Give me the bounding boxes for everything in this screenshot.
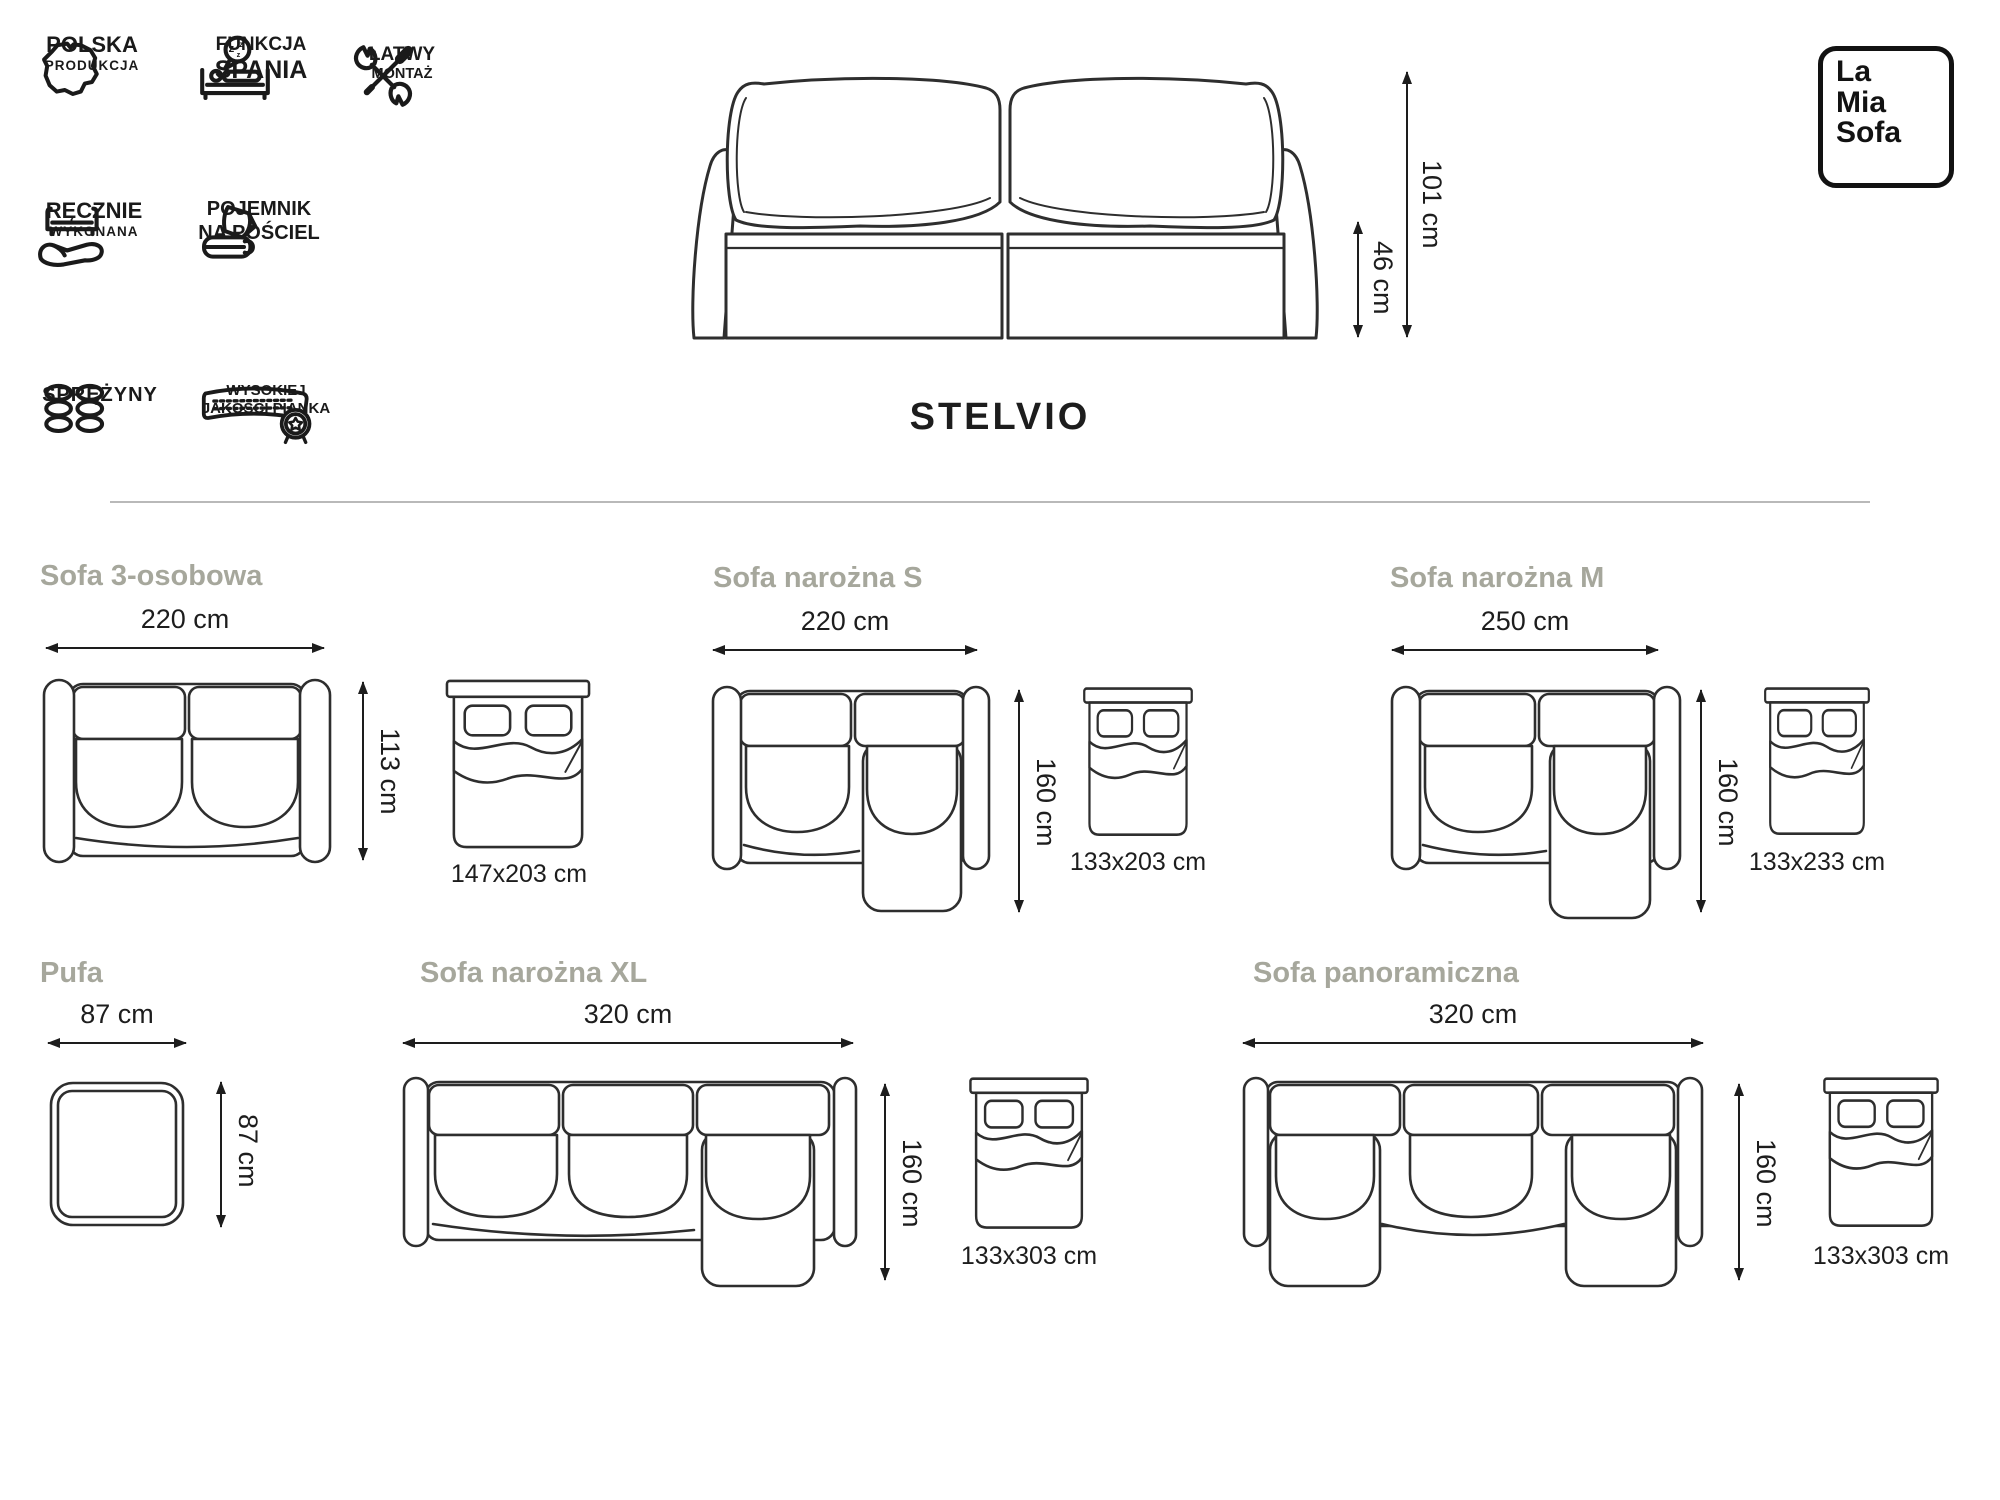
depth-dimension-arrow bbox=[884, 1084, 886, 1280]
spec-sheet: POLSKA PRODUKCJA z z z FUNKCJA SPANIA bbox=[0, 0, 2000, 1500]
depth-dimension-label: 160 cm bbox=[1750, 1139, 1781, 1228]
width-dimension-arrow bbox=[1392, 649, 1658, 651]
handmade-icon bbox=[30, 198, 114, 280]
pufa-top-view bbox=[48, 1080, 186, 1228]
variant-title-sofa-panoramiczna: Sofa panoramiczna bbox=[1253, 957, 1519, 990]
bed-size-icon bbox=[444, 678, 592, 852]
width-dimension-label: 220 cm bbox=[713, 606, 977, 637]
svg-text:z: z bbox=[228, 43, 234, 55]
brand-logo: La Mia Sofa bbox=[1818, 46, 1954, 188]
bed-size-label: 133x233 cm bbox=[1713, 848, 1921, 877]
bed-size-icon bbox=[1822, 1076, 1940, 1230]
width-dimension-label: 250 cm bbox=[1392, 606, 1658, 637]
width-dimension-arrow bbox=[403, 1042, 853, 1044]
feature-recznie-wykonana: RĘCZNIE WYKONANA bbox=[30, 198, 158, 240]
brand-logo-line: Mia bbox=[1836, 88, 1949, 119]
divider bbox=[110, 501, 1870, 503]
bed-size-label: 133x303 cm bbox=[1797, 1242, 1965, 1271]
brand-logo-line: La bbox=[1836, 57, 1949, 88]
tools-icon bbox=[348, 40, 418, 112]
variant-title-sofa-narozna-m: Sofa narożna M bbox=[1390, 562, 1604, 595]
sofa-front-view-drawing bbox=[680, 62, 1330, 342]
depth-dimension-arrow bbox=[1018, 690, 1020, 912]
feature-polska-produkcja: POLSKA PRODUKCJA bbox=[28, 32, 156, 74]
depth-dimension-arrow bbox=[220, 1082, 222, 1227]
variant-title-sofa-3-osobowa: Sofa 3-osobowa bbox=[40, 560, 262, 593]
variant-title-pufa: Pufa bbox=[40, 957, 103, 990]
feature-pojemnik-na-posciel: POJEMNIK NA POŚCIEL bbox=[188, 198, 330, 245]
variant-title-sofa-narozna-xl: Sofa narożna XL bbox=[420, 957, 647, 990]
width-dimension-label: 320 cm bbox=[403, 999, 853, 1030]
bed-size-label: 133x303 cm bbox=[943, 1242, 1115, 1271]
bed-size-label: 147x203 cm bbox=[414, 860, 624, 889]
bed-size-icon bbox=[968, 1076, 1090, 1232]
depth-dimension-arrow bbox=[1700, 690, 1702, 912]
feature-latwy-montaz: ŁATWY MONTAŻ bbox=[348, 40, 456, 84]
bedding-storage-icon bbox=[188, 198, 268, 280]
width-dimension-label: 220 cm bbox=[46, 604, 324, 635]
bed-size-icon bbox=[1082, 686, 1194, 839]
seat-height-arrow bbox=[1357, 222, 1359, 337]
sleep-function-icon: z z z bbox=[192, 34, 278, 116]
sofa-top-view-3-osobowa bbox=[42, 678, 332, 864]
total-height-arrow bbox=[1406, 72, 1408, 337]
width-dimension-arrow bbox=[713, 649, 977, 651]
sofa-top-view-narozna-m bbox=[1390, 685, 1682, 920]
width-dimension-arrow bbox=[46, 647, 324, 649]
feature-funkcja-spania: z z z FUNKCJA SPANIA bbox=[192, 34, 330, 86]
sofa-top-view-narozna-s bbox=[711, 685, 991, 915]
product-title: STELVIO bbox=[800, 396, 1200, 439]
svg-text:z: z bbox=[237, 50, 241, 59]
width-dimension-arrow bbox=[1243, 1042, 1703, 1044]
svg-text:z: z bbox=[239, 40, 243, 49]
brand-logo-line: Sofa bbox=[1836, 118, 1949, 149]
poland-map-icon bbox=[28, 32, 108, 116]
springs-icon bbox=[34, 378, 116, 452]
depth-dimension-label: 160 cm bbox=[896, 1139, 927, 1228]
width-dimension-label: 320 cm bbox=[1243, 999, 1703, 1030]
width-dimension-arrow bbox=[48, 1042, 186, 1044]
feature-wysokiej-jakosci-pianka: WYSOKIEJ JAKOŚCI PIANKA bbox=[186, 380, 346, 417]
bed-size-label: 133x203 cm bbox=[1032, 848, 1244, 877]
width-dimension-label: 87 cm bbox=[23, 999, 211, 1030]
depth-dimension-label: 160 cm bbox=[1712, 758, 1743, 847]
bed-size-icon bbox=[1763, 686, 1871, 838]
sofa-top-view-panoramiczna bbox=[1242, 1076, 1704, 1290]
depth-dimension-arrow bbox=[1738, 1084, 1740, 1280]
sofa-top-view-narozna-xl bbox=[402, 1076, 858, 1290]
depth-dimension-arrow bbox=[362, 682, 364, 860]
feature-sprezyny: SPRĘŻYNY bbox=[34, 378, 166, 408]
depth-dimension-label: 113 cm bbox=[374, 728, 405, 815]
variant-title-sofa-narozna-s: Sofa narożna S bbox=[713, 562, 923, 595]
foam-icon bbox=[186, 380, 326, 444]
total-height-label: 101 cm bbox=[1416, 160, 1447, 249]
depth-dimension-label: 160 cm bbox=[1030, 758, 1061, 847]
seat-height-label: 46 cm bbox=[1367, 241, 1398, 315]
depth-dimension-label: 87 cm bbox=[232, 1114, 263, 1188]
